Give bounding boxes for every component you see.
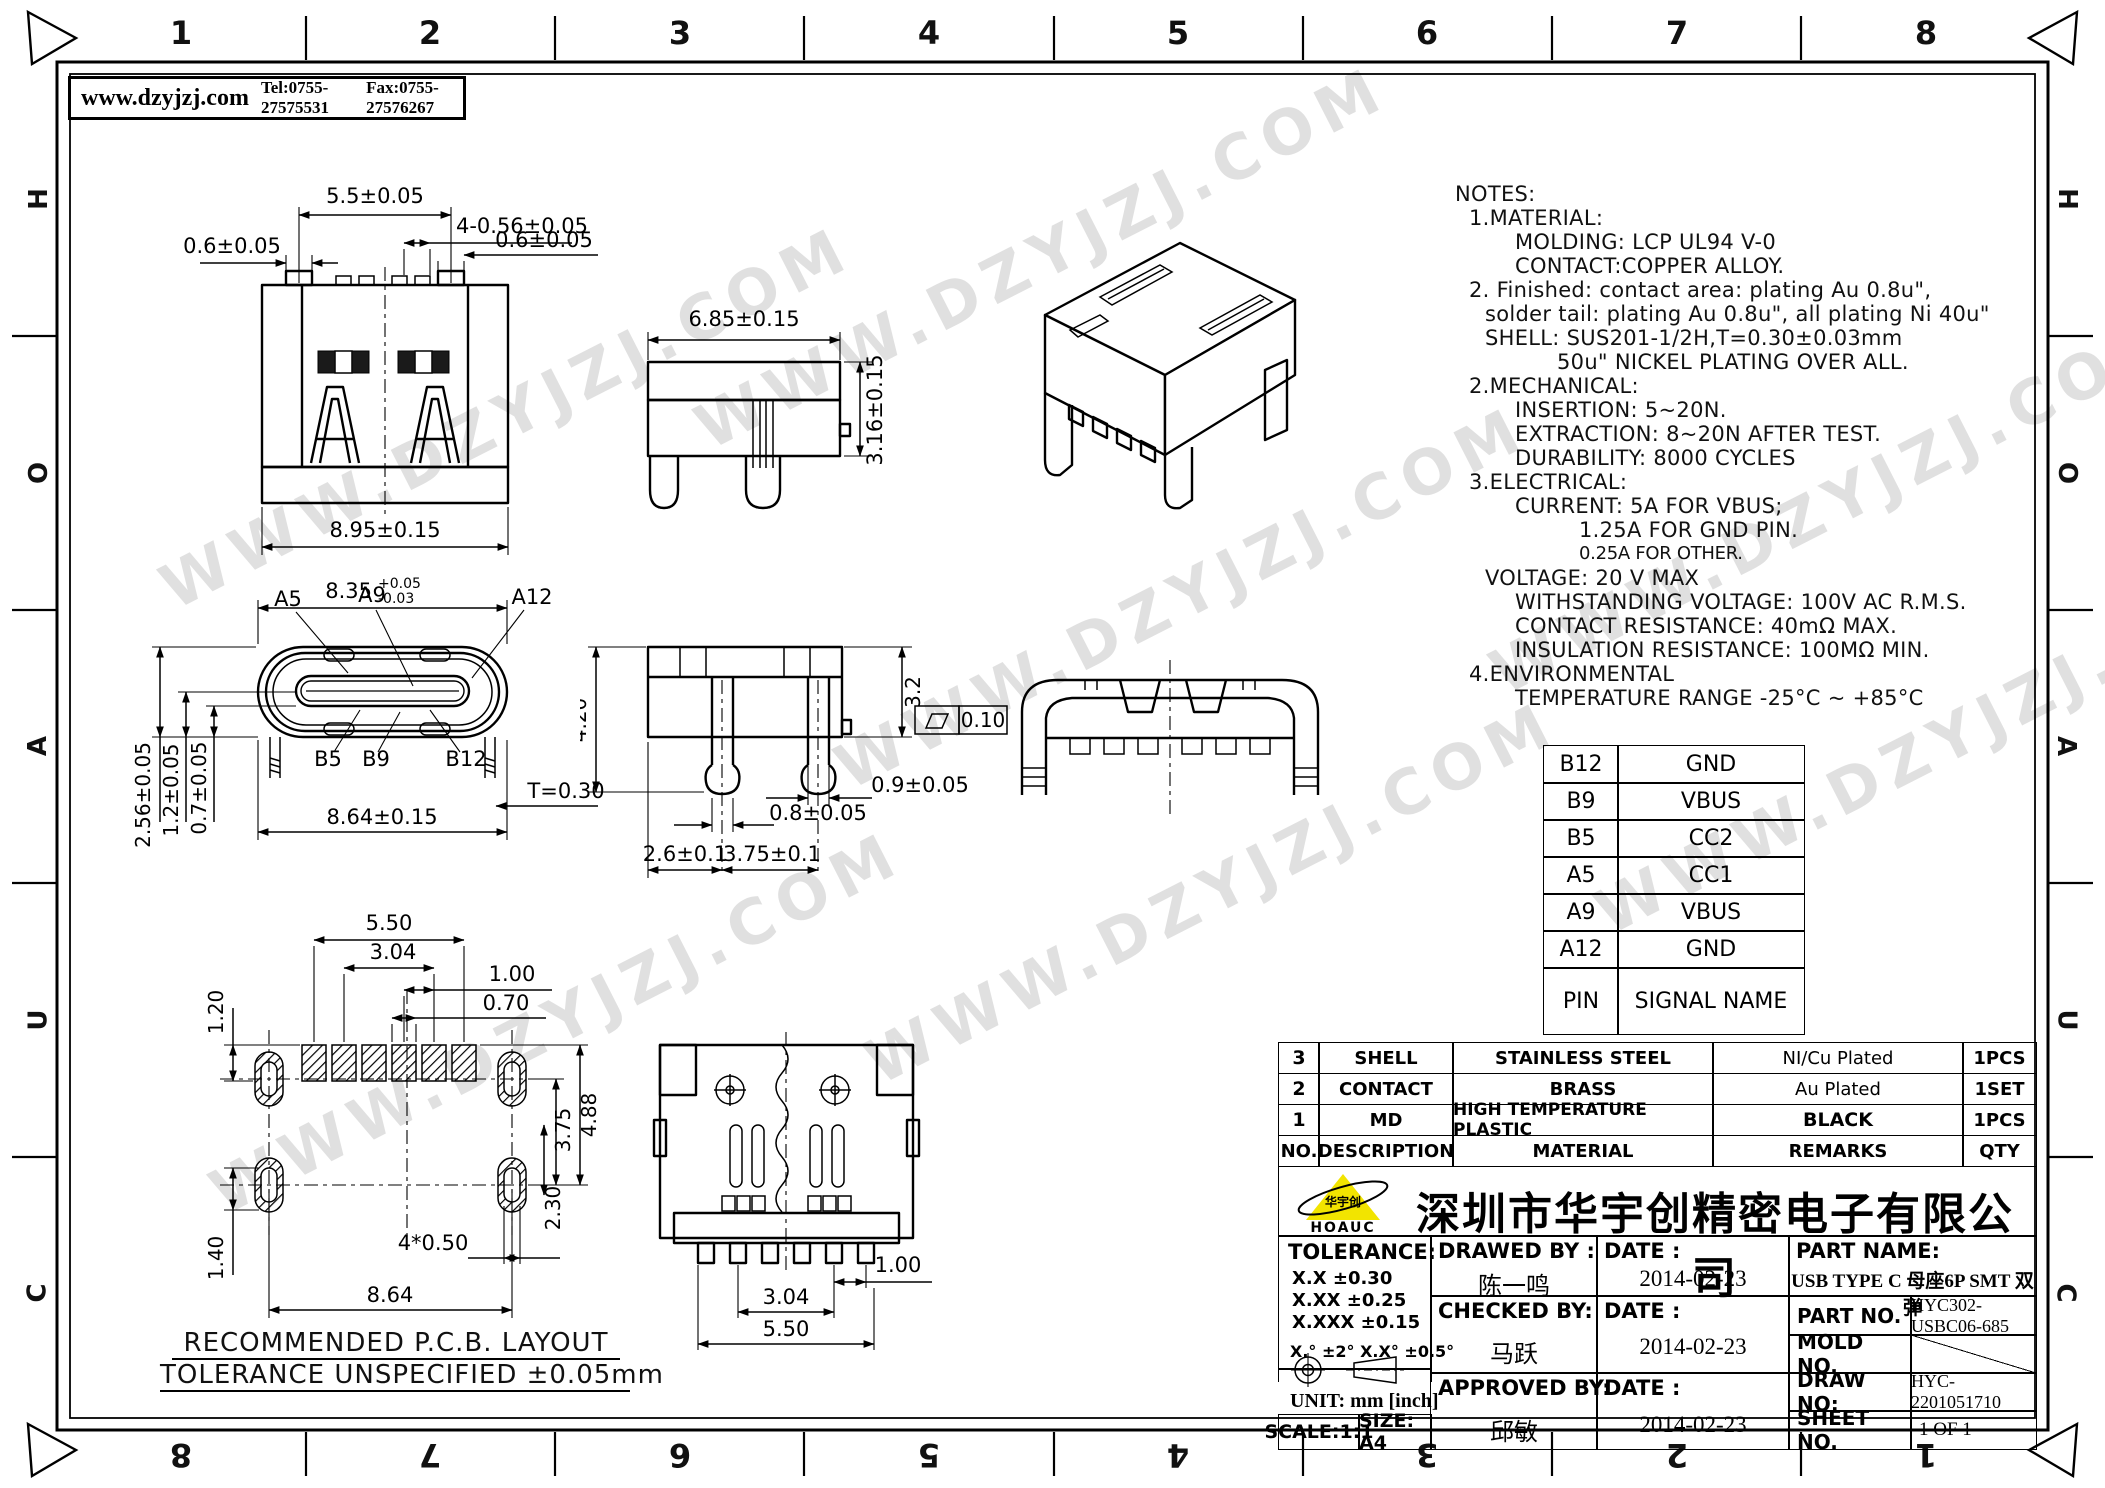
mold-no-value-empty	[1910, 1334, 2037, 1374]
dim-26: 2.6±0.1	[643, 842, 727, 866]
pin-section-drawing: 4.20 3.2 0.10 0.9±0.05 0.8±0.05 2.6±0.1 …	[580, 580, 1040, 920]
pcb-dim-100: 1.00	[489, 962, 536, 986]
dim-256: 2.56±0.05	[131, 742, 155, 848]
ruler-top-3: 3	[669, 14, 691, 52]
part-no-value: HYC302-USBC06-685	[1910, 1295, 2037, 1336]
fax: Fax:0755-27576267	[366, 78, 463, 118]
date-value-3: 2014-02-23	[1596, 1412, 1790, 1438]
sheet-no-value: 1 OF 1	[1910, 1410, 2037, 1450]
logo-latin-text: HOAUC	[1310, 1220, 1375, 1234]
ruler-top-2: 2	[419, 14, 441, 52]
pin-header: PIN	[1543, 967, 1619, 1035]
pcb-dim-304: 3.04	[370, 940, 417, 964]
pin-label-b9: B9	[362, 747, 390, 771]
dim-835: 8.35	[325, 579, 372, 603]
pin-label-b12: B12	[445, 747, 486, 771]
notes-title: NOTES:	[1455, 182, 2055, 206]
pin-cell: A5	[1543, 856, 1619, 895]
isometric-view-drawing	[950, 165, 1350, 535]
pcb-dim-070: 0.70	[483, 991, 530, 1015]
pcb-caption-1: RECOMMENDED P.C.B. LAYOUT	[172, 1328, 620, 1360]
dim-5p5: 5.5±0.05	[326, 184, 424, 208]
notes-block: NOTES: 1.MATERIAL: MOLDING: LCP UL94 V-0…	[1455, 182, 2055, 710]
pcb-dim-140: 1.40	[204, 1236, 228, 1281]
dim-375: 3.75±0.1	[723, 842, 821, 866]
pin-cell: A12	[1543, 930, 1619, 969]
pin-cell: A9	[1543, 893, 1619, 932]
bottom-view-drawing: 1.00 3.04 5.50	[630, 1020, 1050, 1400]
ruler-bottom-4: 4	[1167, 1436, 1189, 1474]
pin-cell: B12	[1543, 745, 1619, 784]
pcb-dim-375: 3.75	[551, 1108, 575, 1153]
shell-rear-view-drawing	[1000, 620, 1340, 830]
dim-flatness-010: 0.10	[961, 708, 1006, 732]
drawing-sheet: 1 2 3 4 5 6 7 8 8 7 6 5 4 3 2 1 H O A U …	[0, 0, 2105, 1488]
front-view-drawing: A5 A9 A12 B5 B9 B12 8.35 +0.05 -0.03 2.5…	[120, 540, 620, 880]
pcb-layout-drawing: 5.50 3.04 1.00 0.70 1.20 4.88 3.75 2.30 …	[160, 890, 660, 1340]
pin-label-a5: A5	[274, 587, 302, 611]
pcb-dim-864: 8.64	[367, 1283, 414, 1307]
website: www.dzyjzj.com	[81, 85, 249, 112]
ruler-top-4: 4	[918, 14, 940, 52]
telephone: Tel:0755-27575531	[261, 78, 354, 118]
date-value-1: 2014-02-23	[1596, 1266, 1790, 1292]
dim-835-plus: +0.05	[378, 576, 421, 592]
zone-letter-left-1: H	[24, 188, 54, 210]
date-value-2: 2014-02-23	[1596, 1334, 1790, 1360]
zone-letter-right-4: U	[2052, 1009, 2082, 1030]
company-contact-box: www.dzyjzj.com Tel:0755-27575531 Fax:075…	[68, 76, 466, 120]
ruler-top-7: 7	[1666, 14, 1688, 52]
dim-420: 4.20	[580, 698, 591, 743]
pcb-dim-120: 1.20	[204, 990, 228, 1035]
signal-cell: CC2	[1617, 819, 1805, 858]
dim-864: 8.64±0.15	[326, 805, 437, 829]
signal-cell: VBUS	[1617, 893, 1805, 932]
ruler-bottom-6: 6	[669, 1436, 691, 1474]
ruler-bottom-7: 7	[419, 1436, 441, 1474]
dim-316: 3.16±0.15	[863, 354, 887, 465]
signal-cell: VBUS	[1617, 782, 1805, 821]
rear-view-drawing: 5.5±0.05 4-0.56±0.05 0.6±0.05 0.6±0.05 8…	[140, 155, 610, 575]
dim-685: 6.85±0.15	[688, 307, 799, 331]
pin-cell: B5	[1543, 819, 1619, 858]
side-view-drawing: 6.85±0.15 3.16±0.15	[620, 280, 960, 540]
zone-letter-left-4: U	[24, 1009, 54, 1030]
dim-895: 8.95±0.15	[329, 518, 440, 542]
signal-cell: GND	[1617, 745, 1805, 784]
signal-header: SIGNAL NAME	[1617, 967, 1805, 1035]
company-logo: 华宇创 HOAUC	[1288, 1170, 1398, 1234]
dim-08: 0.8±0.05	[769, 801, 867, 825]
zone-letter-right-3: A	[2051, 736, 2081, 756]
size-cell: SIZE: A4	[1358, 1414, 1432, 1450]
draw-no-value: HYC-2201051710	[1910, 1372, 2037, 1412]
checked-name: 马跃	[1430, 1334, 1598, 1369]
pin-label-b5: B5	[314, 747, 342, 771]
sheet-no-label: SHEET NO.	[1788, 1410, 1912, 1450]
dim-09: 0.9±0.05	[871, 773, 969, 797]
bottom-dim-550: 5.50	[763, 1317, 810, 1341]
dim-835-minus: -0.03	[378, 591, 414, 607]
scale-cell: SCALE:1:1	[1278, 1414, 1360, 1450]
pcb-dim-4x050: 4*0.50	[398, 1231, 469, 1255]
ruler-top-8: 8	[1915, 14, 1937, 52]
zone-letter-right-5: C	[2051, 1283, 2081, 1302]
signal-cell: CC1	[1617, 856, 1805, 895]
pcb-dim-488: 4.88	[577, 1093, 601, 1138]
dim-07: 0.7±0.05	[187, 741, 211, 834]
tolerance-title: TOLERANCE:	[1288, 1240, 1436, 1264]
signal-cell: GND	[1617, 930, 1805, 969]
logo-cn-text: 华宇创	[1325, 1194, 1361, 1209]
dim-06-right: 0.6±0.05	[495, 228, 593, 252]
projection-symbols	[1284, 1350, 1434, 1390]
ruler-top-1: 1	[170, 14, 192, 52]
pcb-dim-230: 2.30	[541, 1186, 565, 1231]
ruler-bottom-8: 8	[170, 1436, 192, 1474]
dim-06-left: 0.6±0.05	[183, 234, 281, 258]
dim-12: 1.2±0.05	[159, 743, 183, 836]
pin-label-a12: A12	[511, 585, 552, 609]
ruler-top-5: 5	[1167, 14, 1189, 52]
ruler-top-6: 6	[1416, 14, 1438, 52]
approved-name: 邱敏	[1430, 1412, 1598, 1447]
pcb-caption-2: TOLERANCE UNSPECIFIED ±0.05mm	[160, 1360, 630, 1392]
dim-32: 3.2	[901, 676, 925, 708]
pcb-dim-550: 5.50	[366, 911, 413, 935]
zone-letter-left-2: O	[24, 462, 54, 484]
pin-cell: B9	[1543, 782, 1619, 821]
zone-letter-left-5: C	[23, 1283, 53, 1302]
zone-letter-left-3: A	[23, 736, 53, 756]
zone-letter-right-2: O	[2052, 462, 2082, 484]
bottom-dim-304: 3.04	[763, 1285, 810, 1309]
zone-letter-right-1: H	[2052, 188, 2082, 210]
bottom-dim-100: 1.00	[875, 1253, 922, 1277]
ruler-bottom-5: 5	[918, 1436, 940, 1474]
